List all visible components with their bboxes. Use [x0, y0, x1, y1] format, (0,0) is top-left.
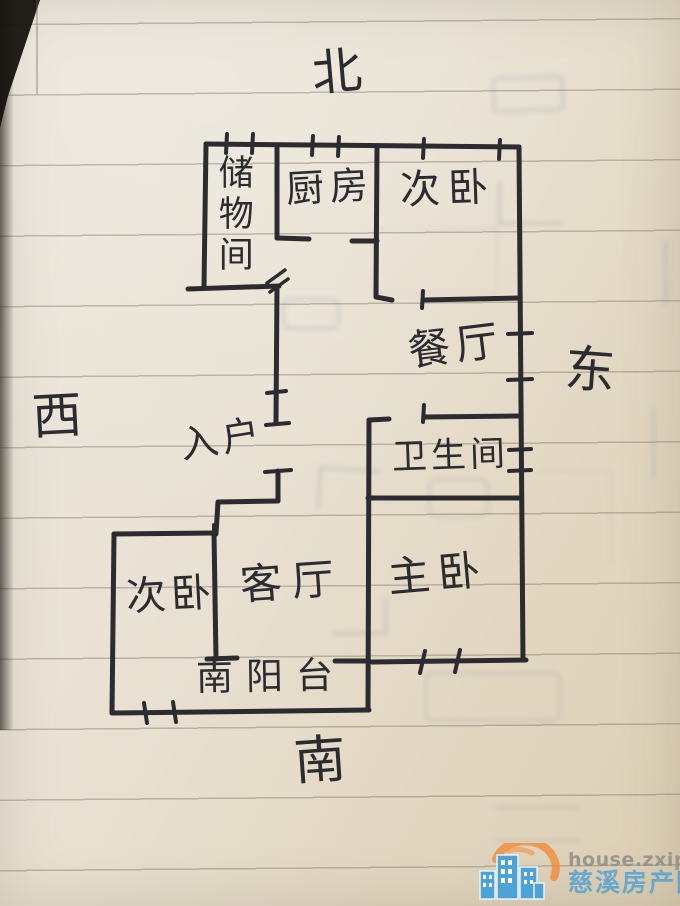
- compass-north-label: 北: [310, 44, 364, 101]
- walls: [112, 144, 526, 713]
- room-label-storage: 储物间: [214, 154, 251, 277]
- room-label-living: 客厅: [239, 556, 346, 607]
- site-logo-icon: [468, 843, 562, 903]
- room-label-master-bedroom: 主卧: [386, 548, 489, 601]
- room-label-balcony: 南阳台: [196, 657, 347, 698]
- watermark: house.zxip.com 慈溪房产网: [468, 843, 680, 903]
- room-label-bedroom-north: 次卧: [399, 166, 496, 211]
- compass-south-label: 南: [292, 732, 348, 790]
- compass-east-label: 东: [563, 342, 617, 398]
- watermark-text: house.zxip.com 慈溪房产网: [568, 851, 680, 896]
- room-label-kitchen: 厨房: [285, 166, 375, 210]
- room-label-bedroom-west: 次卧: [125, 572, 217, 619]
- room-label-bathroom: 卫生间: [391, 436, 509, 477]
- compass-west-label: 西: [31, 389, 84, 444]
- notebook-floorplan-photo: 北 东 西 南 储物间 厨房 次卧 餐厅 卫生间 入户 次卧 客厅 主卧 南阳台: [0, 0, 680, 906]
- room-label-dining: 餐厅: [406, 318, 507, 373]
- watermark-site-name: 慈溪房产网: [568, 870, 680, 896]
